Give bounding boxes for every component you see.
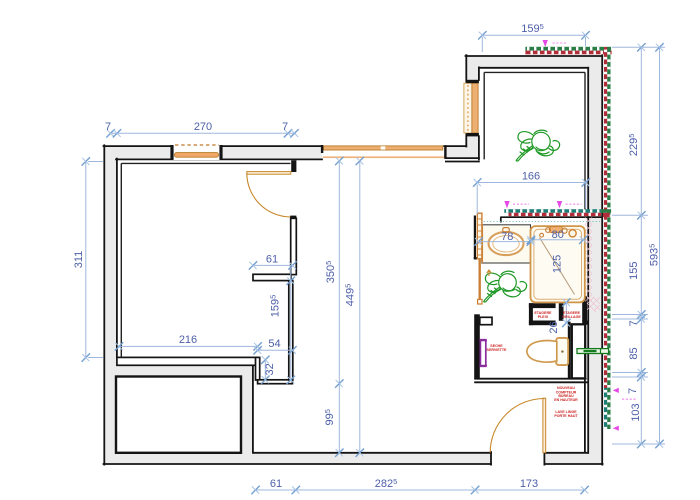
svg-text:7: 7 bbox=[105, 121, 111, 133]
svg-text:PLEXI: PLEXI bbox=[538, 315, 548, 319]
svg-text:61: 61 bbox=[266, 253, 278, 265]
svg-text:103: 103 bbox=[630, 403, 642, 421]
svg-text:311: 311 bbox=[73, 251, 85, 269]
svg-text:PORTE HAUT: PORTE HAUT bbox=[554, 414, 578, 418]
svg-text:166: 166 bbox=[522, 170, 540, 182]
svg-text:54: 54 bbox=[268, 338, 280, 350]
svg-text:7: 7 bbox=[282, 121, 288, 133]
svg-text:SERVIETTE: SERVIETTE bbox=[487, 348, 508, 352]
svg-text:EN HAUTEUR: EN HAUTEUR bbox=[554, 398, 578, 402]
svg-text:32: 32 bbox=[264, 363, 276, 375]
svg-text:173: 173 bbox=[520, 478, 538, 490]
svg-text:80: 80 bbox=[552, 229, 564, 241]
svg-text:216: 216 bbox=[179, 334, 197, 346]
svg-text:85: 85 bbox=[628, 347, 640, 359]
svg-text:125: 125 bbox=[552, 255, 564, 273]
svg-text:155: 155 bbox=[628, 262, 640, 280]
svg-text:26: 26 bbox=[548, 321, 560, 333]
svg-text:7: 7 bbox=[627, 388, 639, 394]
svg-text:7: 7 bbox=[628, 320, 640, 326]
svg-text:270: 270 bbox=[194, 121, 212, 133]
svg-text:61: 61 bbox=[270, 478, 282, 490]
svg-text:78: 78 bbox=[501, 231, 513, 243]
svg-text:GRILLAGE: GRILLAGE bbox=[562, 315, 581, 319]
